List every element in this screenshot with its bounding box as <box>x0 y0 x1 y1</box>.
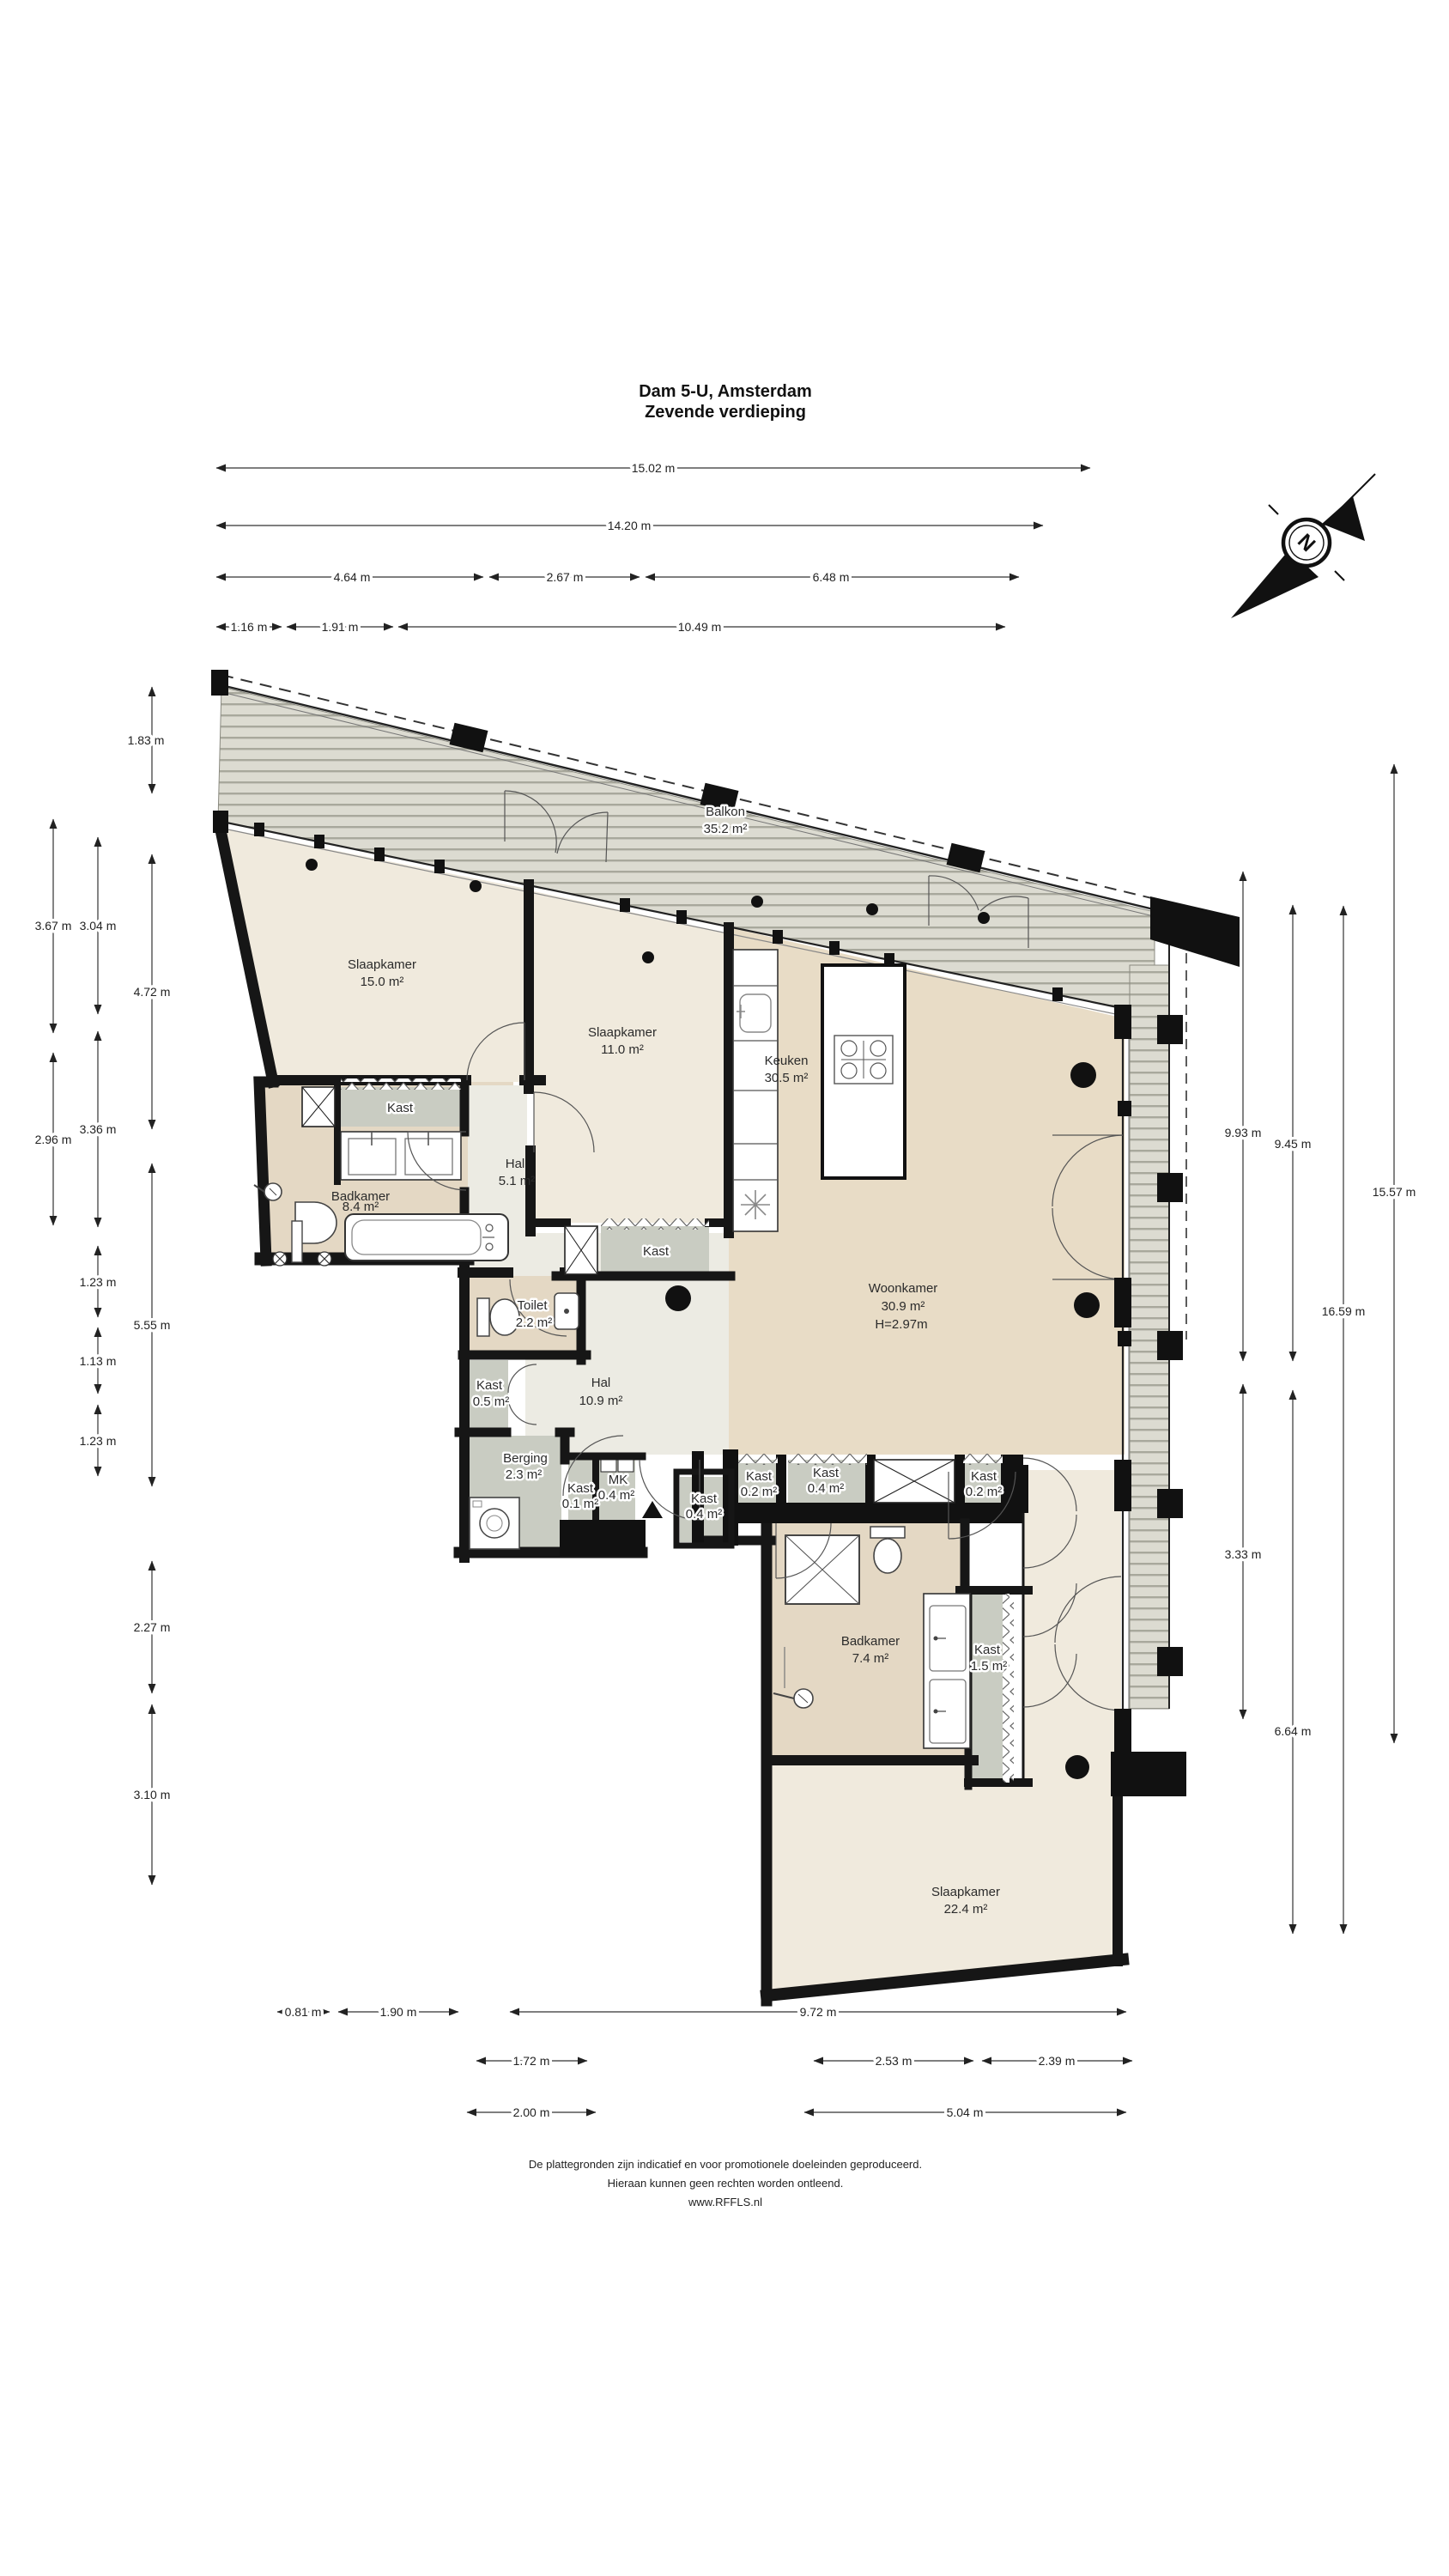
dim-right-16-59: 16.59 m <box>1322 1304 1366 1318</box>
room-area-kast02a: 0.2 m² <box>741 1485 778 1499</box>
washing-machine-icon <box>470 1498 519 1549</box>
room-name-kast05: Kast <box>476 1378 503 1393</box>
dim-left-1-23b: 1.23 m <box>80 1434 117 1448</box>
room-name-keuken: Keuken <box>765 1054 809 1068</box>
room-area-kast04b: 0.4 m² <box>808 1481 845 1496</box>
dim-left-3-04: 3.04 m <box>80 919 117 933</box>
dim-top-2-67: 2.67 m <box>547 570 584 584</box>
dim-top-1-91: 1.91 m <box>322 620 359 634</box>
room-name-hal1: Hal <box>506 1157 525 1171</box>
dim-left-3-67: 3.67 m <box>35 919 72 933</box>
dim-left-5-55: 5.55 m <box>134 1318 171 1332</box>
room-area-hal1: 5.1 m² <box>499 1174 536 1188</box>
title-line2: Zevende verdieping <box>645 403 806 422</box>
room-area-berging: 2.3 m² <box>506 1467 543 1482</box>
dim-left-3-10: 3.10 m <box>134 1788 171 1801</box>
dim-top-6-48: 6.48 m <box>813 570 850 584</box>
footer-line2: Hieraan kunnen geen rechten worden ontle… <box>608 2177 844 2190</box>
dim-bottom-1-72: 1.72 m <box>513 2054 550 2068</box>
dim-top-14-20: 14.20 m <box>608 519 652 532</box>
double-sink-icon-badkamer2 <box>924 1594 970 1748</box>
floorplan-page: Dam 5-U, Amsterdam Zevende verdieping N <box>0 0 1449 2576</box>
small-sink-icon <box>555 1293 579 1329</box>
dim-left-1-13: 1.13 m <box>80 1354 117 1368</box>
dim-right-9-45: 9.45 m <box>1275 1137 1312 1151</box>
room-name-kast02b: Kast <box>971 1469 997 1484</box>
dim-left-2-27: 2.27 m <box>134 1620 171 1634</box>
dim-right-15-57: 15.57 m <box>1373 1185 1416 1199</box>
dim-bottom-9-72: 9.72 m <box>800 2005 837 2019</box>
dim-top-10-49: 10.49 m <box>678 620 722 634</box>
room-area-mk: 0.4 m² <box>598 1488 635 1503</box>
footer-line3: www.RFFLS.nl <box>688 2196 762 2208</box>
footer-disclaimer: De plattegronden zijn indicatief en voor… <box>529 2158 922 2208</box>
room-name-slaapkamer1: Slaapkamer <box>348 957 416 972</box>
room-name-kast-s2: Kast <box>643 1244 670 1259</box>
page-title: Dam 5-U, Amsterdam Zevende verdieping <box>639 382 812 422</box>
room-height-woonkamer: H=2.97m <box>875 1317 927 1332</box>
north-compass-icon: N <box>1231 474 1375 618</box>
room-area-slaapkamer2: 11.0 m² <box>601 1042 644 1057</box>
freezer-snowflake-icon <box>741 1190 770 1219</box>
room-name-slaapkamer3: Slaapkamer <box>931 1885 1000 1899</box>
kitchen-counter-icon <box>733 950 778 1231</box>
title-line1: Dam 5-U, Amsterdam <box>639 382 812 401</box>
room-name-balkon: Balkon <box>706 805 745 819</box>
room-area-woonkamer: 30.9 m² <box>882 1299 925 1314</box>
dim-bottom-2-00: 2.00 m <box>513 2105 550 2119</box>
room-area-kast02b: 0.2 m² <box>966 1485 1003 1499</box>
room-area-slaapkamer1: 15.0 m² <box>361 975 404 989</box>
room-name-kast-top: Kast <box>387 1101 414 1115</box>
room-area-hal2: 10.9 m² <box>579 1394 623 1408</box>
room-name-slaapkamer2: Slaapkamer <box>588 1025 657 1040</box>
kitchen-island-icon <box>822 965 905 1178</box>
room-area-badkamer1b: 8.4 m² <box>343 1200 379 1214</box>
dim-top-15-02: 15.02 m <box>632 461 676 475</box>
entrance-arrow-icon <box>642 1501 663 1518</box>
room-area-slaapkamer3: 22.4 m² <box>944 1902 988 1917</box>
dim-top-4-64: 4.64 m <box>334 570 371 584</box>
dim-left-4-72: 4.72 m <box>134 985 171 999</box>
room-name-kast04a: Kast <box>691 1492 718 1506</box>
bathtub-icon <box>345 1214 508 1261</box>
dim-bottom-2-53: 2.53 m <box>876 2054 912 2068</box>
toilet-icon-toiletroom <box>477 1298 519 1336</box>
dim-bottom-5-04: 5.04 m <box>947 2105 984 2119</box>
room-area-balkon: 35.2 m² <box>704 822 748 836</box>
room-floors <box>221 828 1125 1999</box>
dim-right-3-33: 3.33 m <box>1225 1547 1262 1561</box>
room-area-kast04a: 0.4 m² <box>686 1507 723 1522</box>
room-name-kast01: Kast <box>567 1481 594 1496</box>
double-sink-icon <box>341 1132 461 1180</box>
room-name-toilet: Toilet <box>517 1298 548 1313</box>
dim-bottom-0-81: 0.81 m <box>285 2005 322 2019</box>
room-name-kast15: Kast <box>974 1643 1001 1657</box>
room-name-hal2: Hal <box>591 1376 611 1390</box>
dim-left-3-36: 3.36 m <box>80 1122 117 1136</box>
room-area-toilet: 2.2 m² <box>516 1315 553 1330</box>
dim-right-9-93: 9.93 m <box>1225 1126 1262 1139</box>
dim-bottom-1-90: 1.90 m <box>380 2005 417 2019</box>
room-name-kast04b: Kast <box>813 1466 840 1480</box>
room-area-badkamer2: 7.4 m² <box>852 1651 889 1666</box>
room-area-kast01: 0.1 m² <box>562 1497 599 1511</box>
room-name-berging: Berging <box>503 1451 548 1466</box>
room-area-keuken: 30.5 m² <box>765 1071 809 1085</box>
dim-left-2-96: 2.96 m <box>35 1133 72 1146</box>
dim-bottom-2-39: 2.39 m <box>1039 2054 1076 2068</box>
room-name-mk: MK <box>609 1473 628 1487</box>
dim-top-1-16: 1.16 m <box>231 620 268 634</box>
footer-line1: De plattegronden zijn indicatief en voor… <box>529 2158 922 2171</box>
room-name-woonkamer: Woonkamer <box>869 1281 938 1296</box>
room-area-kast05: 0.5 m² <box>473 1394 510 1409</box>
room-name-badkamer2: Badkamer <box>841 1634 900 1649</box>
room-name-kast02a: Kast <box>746 1469 773 1484</box>
room-area-kast15: 1.5 m² <box>971 1659 1008 1674</box>
dim-left-1-83: 1.83 m <box>128 733 165 747</box>
floor-plan-svg: Dam 5-U, Amsterdam Zevende verdieping N <box>0 0 1449 2576</box>
dim-left-1-23a: 1.23 m <box>80 1275 117 1289</box>
shower-icon-badkamer2 <box>785 1535 859 1604</box>
dim-right-6-64: 6.64 m <box>1275 1724 1312 1738</box>
